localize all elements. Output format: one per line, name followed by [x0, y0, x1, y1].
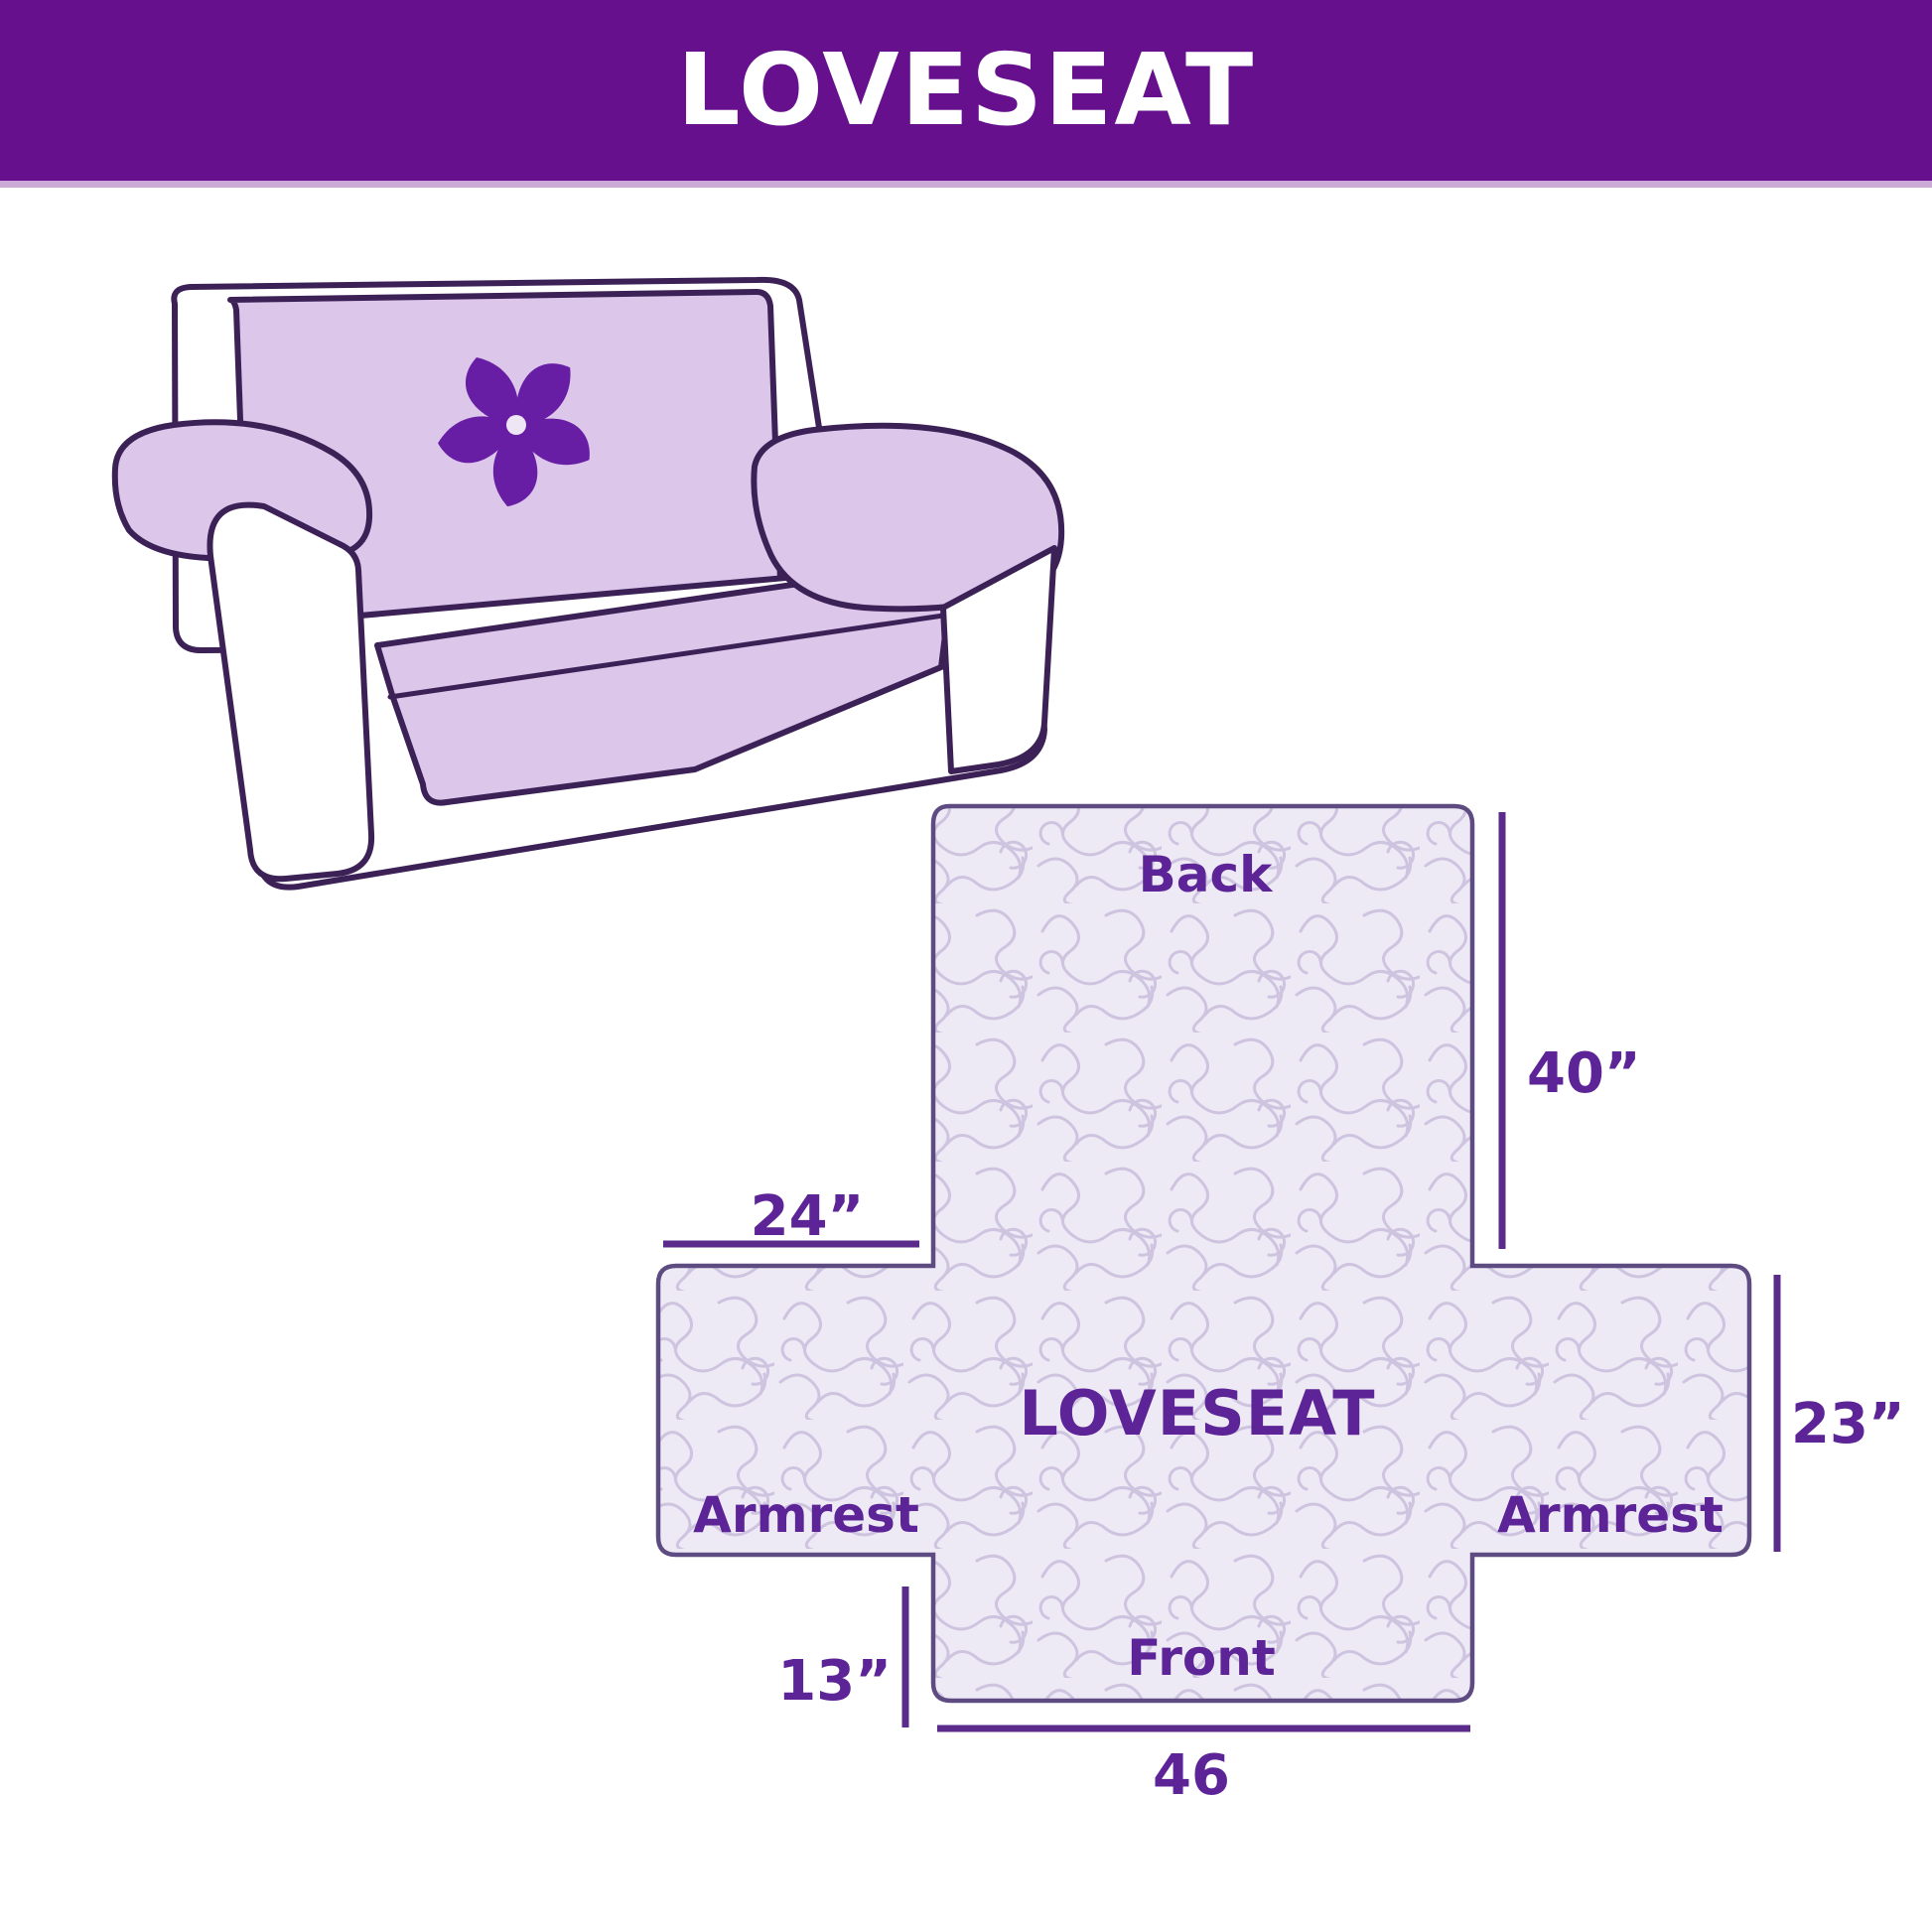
dim-side-height-label: 23”	[1791, 1392, 1905, 1456]
sofa-illustration	[115, 280, 1061, 888]
cover-cross-shape	[658, 806, 1749, 1701]
armrest-left-label: Armrest	[693, 1486, 919, 1544]
center-panel-label: LOVESEAT	[1019, 1377, 1375, 1449]
back-panel-label: Back	[1139, 846, 1274, 903]
dim-front-drop-label: 13”	[777, 1649, 892, 1714]
cover-diagram: Back LOVESEAT Armrest Armrest Front 24” …	[658, 806, 1905, 1808]
dim-front-width-label: 46	[1153, 1743, 1230, 1808]
dim-back-height-label: 40”	[1527, 1041, 1641, 1106]
front-panel-label: Front	[1127, 1629, 1275, 1687]
illustration-and-diagram: Back LOVESEAT Armrest Armrest Front 24” …	[0, 0, 1932, 1932]
infographic-canvas: LOVESEAT	[0, 0, 1932, 1932]
dim-armrest-width-label: 24”	[751, 1184, 865, 1249]
sofa-left-arm-face	[209, 505, 371, 880]
armrest-right-label: Armrest	[1497, 1486, 1724, 1544]
